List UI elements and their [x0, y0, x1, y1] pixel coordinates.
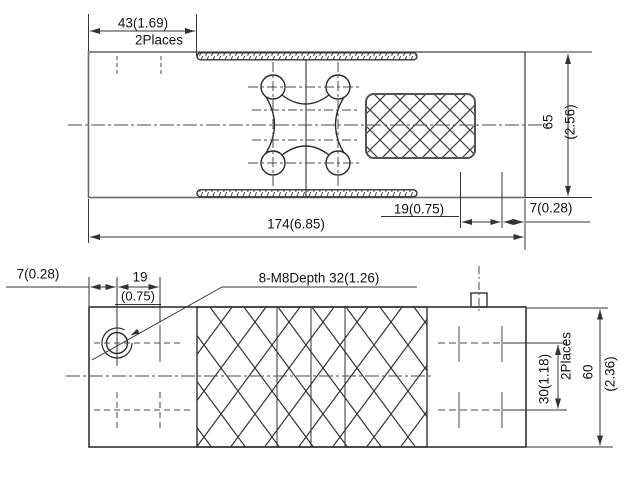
top-view — [68, 52, 548, 198]
dim-label-19-mm-bottom: 19 — [132, 270, 147, 284]
top-view-dimensions — [89, 14, 593, 250]
serrated-edge-bottom — [197, 190, 417, 197]
dim-label-43: 43(1.69) — [118, 16, 168, 30]
dim-label-7-top: 7(0.28) — [530, 201, 573, 215]
hatched-cover-top-view — [366, 94, 475, 158]
dim-label-60-in: (2.36) — [603, 356, 617, 391]
dim-label-60-mm: 60 — [581, 364, 595, 379]
hole-center-marks-left — [94, 325, 190, 430]
dim-label-19-in-bottom: (0.75) — [121, 290, 155, 303]
serrated-edge-top — [197, 53, 417, 60]
hole-center-marks-right — [438, 326, 502, 428]
dim-label-30: 30(1.18) — [537, 354, 551, 404]
technical-drawing-canvas: 43(1.69) 2Places 174(6.85) 19(0.75) 7(0.… — [0, 0, 639, 501]
thread-callout-label: 8-M8Depth 32(1.26) — [259, 271, 380, 285]
note-2places-top: 2Places — [135, 33, 183, 47]
dim-label-19-top: 19(0.75) — [394, 202, 444, 216]
drawing-linework — [0, 0, 639, 501]
note-2places-bottom: 2Places — [559, 332, 573, 380]
dim-label-174: 174(6.85) — [267, 217, 325, 231]
dim-label-7-bottom: 7(0.28) — [17, 267, 60, 281]
hatched-boot-bottom-view — [197, 307, 427, 447]
dim-label-65-mm: 65 — [541, 114, 555, 129]
dim-label-65-in: (2.56) — [563, 104, 577, 139]
